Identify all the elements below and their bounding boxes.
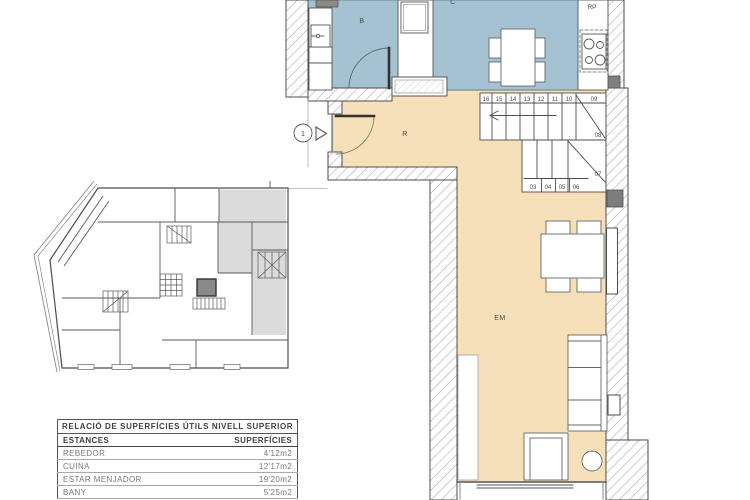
kitchen-table bbox=[501, 29, 535, 86]
entrance-arrow-icon bbox=[316, 127, 327, 140]
areas-table-col-rooms: ESTANCES bbox=[58, 434, 194, 447]
room-name: ESTAR MENJADOR bbox=[58, 473, 194, 486]
table-row: CUINA 12'17m2 bbox=[58, 460, 298, 473]
wall-solid-block bbox=[607, 190, 623, 207]
window-small bbox=[608, 395, 620, 415]
tread-number: 08 bbox=[595, 133, 602, 139]
wall-left bbox=[286, 0, 308, 97]
entrance-marker: 1 bbox=[294, 124, 327, 142]
tread-number: 14 bbox=[510, 97, 517, 103]
table-row: ESTAR MENJADOR 19'20m2 bbox=[58, 473, 298, 486]
tread-number: 11 bbox=[552, 97, 559, 103]
tread-number: 12 bbox=[538, 97, 545, 103]
balcony-opening bbox=[457, 482, 606, 499]
wall-corner-block bbox=[608, 76, 620, 88]
floor-bany-cuina bbox=[308, 0, 608, 90]
floor-plan-sheet: 16 15 14 13 12 11 10 09 08 07 03 04 05 0… bbox=[0, 0, 750, 500]
tread-number: 07 bbox=[595, 172, 602, 178]
room-area: 4'12m2 bbox=[194, 447, 298, 460]
bath-counter bbox=[309, 8, 332, 90]
areas-table: RELACIÓ DE SUPERFÍCIES ÚTILS NIVELL SUPE… bbox=[57, 419, 298, 499]
room-name: BANY bbox=[58, 486, 194, 499]
tread-number: 06 bbox=[573, 185, 580, 191]
tread-number: 03 bbox=[530, 185, 537, 191]
window-dining bbox=[607, 228, 618, 294]
context-lines bbox=[286, 100, 327, 189]
rp-column bbox=[578, 0, 608, 90]
tread-number: 13 bbox=[524, 97, 531, 103]
tread-number: 05 bbox=[559, 185, 566, 191]
table-row: BANY 5'25m2 bbox=[58, 486, 298, 499]
areas-table-col-areas: SUPERFÍCIES bbox=[194, 434, 298, 447]
wall-entry-stub-top bbox=[328, 101, 342, 114]
room-name: REBEDOR bbox=[58, 447, 194, 460]
main-floor-plan: 16 15 14 13 12 11 10 09 08 07 03 04 05 0… bbox=[286, 0, 648, 500]
label-rebedor: R bbox=[402, 131, 408, 138]
armchair bbox=[524, 433, 568, 480]
tread-number: 15 bbox=[496, 97, 503, 103]
table-row: REBEDOR 4'12m2 bbox=[58, 447, 298, 460]
built-in-cabinet bbox=[458, 355, 478, 480]
tread-number: 04 bbox=[545, 185, 552, 191]
overview-plan bbox=[34, 181, 288, 372]
partition-column bbox=[398, 0, 433, 77]
stove-icon bbox=[582, 34, 606, 69]
wall-estar-left bbox=[430, 180, 457, 500]
room-area: 12'17m2 bbox=[194, 460, 298, 473]
entrance-number: 1 bbox=[301, 129, 305, 138]
label-rp: RP bbox=[587, 4, 596, 11]
label-bany: B bbox=[359, 18, 364, 25]
tread-number: 16 bbox=[483, 97, 490, 103]
wall-right-top bbox=[606, 0, 624, 88]
appliance-block bbox=[316, 0, 338, 7]
bench-step bbox=[392, 77, 447, 96]
room-name: CUINA bbox=[58, 460, 194, 473]
dining-table bbox=[541, 234, 604, 278]
areas-table-title: RELACIÓ DE SUPERFÍCIES ÚTILS NIVELL SUPE… bbox=[58, 420, 298, 434]
side-table bbox=[582, 451, 602, 471]
tread-number: 10 bbox=[566, 97, 573, 103]
label-estar-menjador: EM bbox=[494, 315, 506, 322]
room-area: 19'20m2 bbox=[194, 473, 298, 486]
room-area: 5'25m2 bbox=[194, 486, 298, 499]
elevator-core bbox=[197, 279, 216, 296]
sofa bbox=[568, 335, 607, 431]
tread-number: 09 bbox=[591, 97, 598, 103]
wall-right-bottom bbox=[606, 440, 648, 500]
wall-rebedor-bottom bbox=[328, 167, 457, 180]
label-cuina: C bbox=[450, 0, 456, 6]
